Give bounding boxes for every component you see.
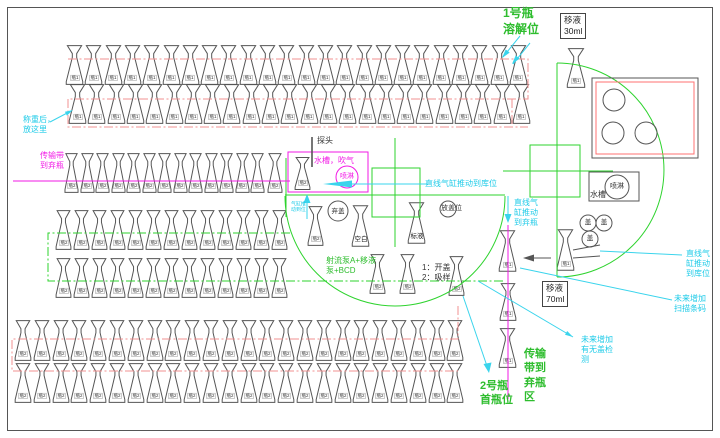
green-serpentine-mid: [48, 233, 503, 281]
push-fork-line-2: [573, 256, 600, 258]
push-arrowhead: [523, 255, 534, 262]
equipment-circle-2: [602, 122, 624, 144]
magenta-structures: [13, 152, 508, 399]
cyan-annotation-lines: [50, 36, 682, 369]
place-cap-circle: [440, 201, 456, 217]
wash-station-box-right: [589, 172, 639, 201]
equipment-box-inner: [596, 82, 694, 154]
black-equipment: [312, 78, 698, 258]
cap-circle-1: [580, 215, 596, 231]
diagram-lines: [0, 0, 720, 438]
equipment-box: [592, 78, 698, 158]
cyl-right-line: [600, 251, 682, 255]
lab-automation-layout-diagram: 瓶1 瓶1 瓶1 瓶1 瓶1 瓶1 瓶1 瓶1 瓶1 瓶1 瓶1 瓶1 瓶1 瓶…: [0, 0, 720, 438]
cap-circle-3: [582, 231, 598, 247]
cap-detect-line: [478, 281, 573, 337]
red-serpentine-top: [68, 59, 528, 127]
cap-circle-2: [596, 215, 612, 231]
right-rotary-circle: [557, 63, 664, 277]
equipment-circle-1: [603, 89, 625, 111]
red-serpentine-bottom: [12, 306, 458, 371]
cyan-arrowheads: [65, 49, 573, 373]
first-bottle-line: [463, 296, 488, 369]
equipment-circle-3: [635, 122, 657, 144]
barcode-line: [520, 268, 672, 300]
spray-circle-right: [605, 175, 629, 199]
wash-station-box-left: [288, 152, 368, 192]
left-lift-square: [372, 168, 420, 217]
discard-cap-circle: [328, 201, 348, 221]
